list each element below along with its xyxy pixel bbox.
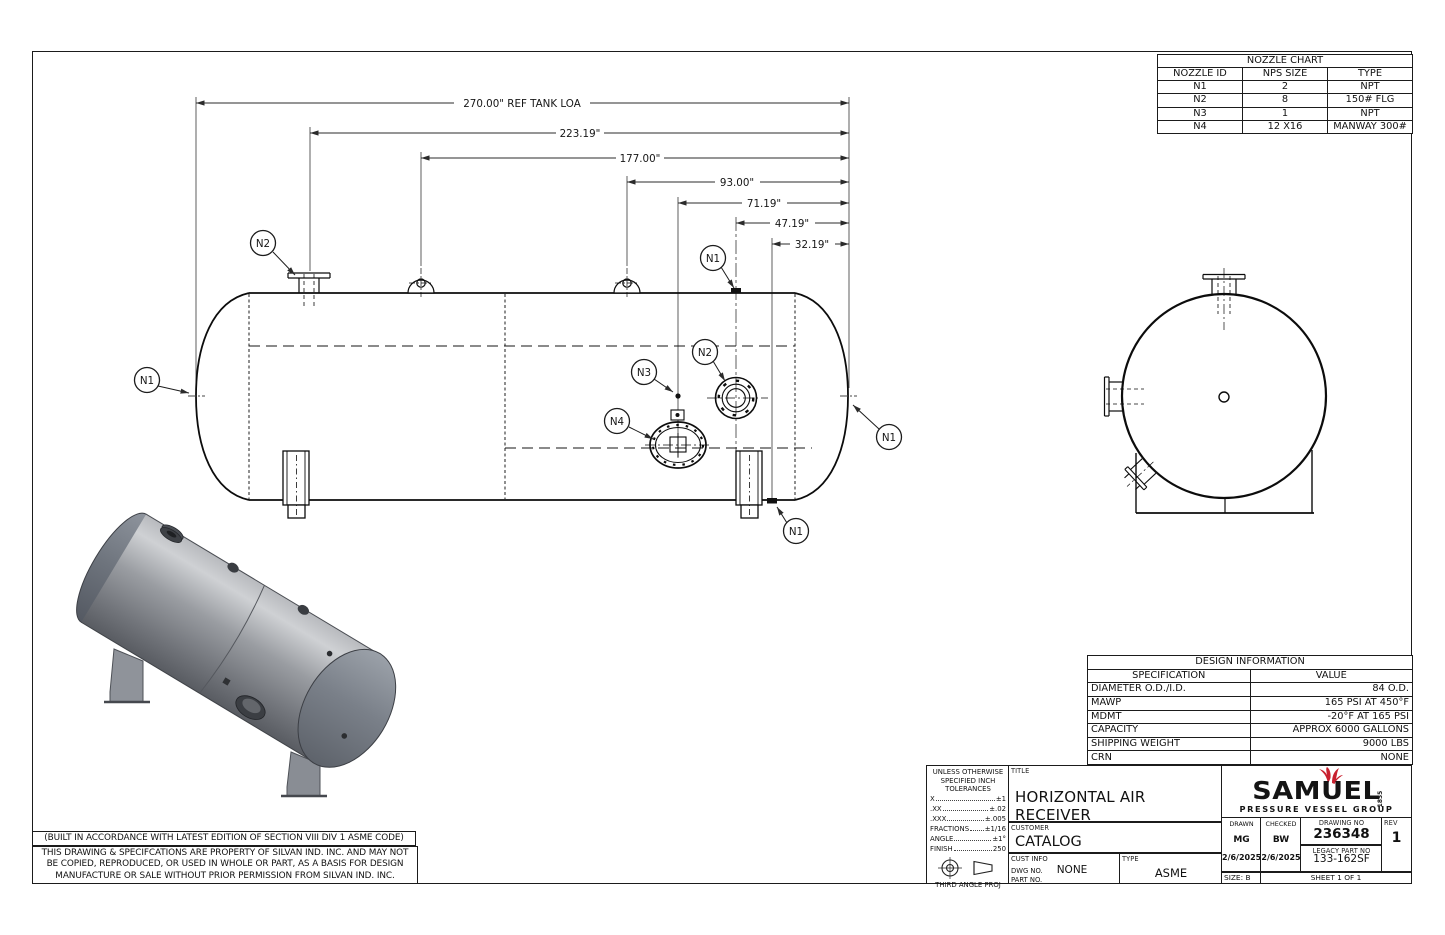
nozzle-size: 8 <box>1243 94 1328 107</box>
tol-name: .XXX <box>930 814 946 824</box>
spec-value: APPROX 6000 GALLONS <box>1250 724 1413 738</box>
spec-name: MAWP <box>1088 696 1251 710</box>
tolerance-heading: TOLERANCES <box>930 785 1006 794</box>
cust-info-label: CUST INFO <box>1011 855 1048 863</box>
drawn-by: MG <box>1222 835 1261 845</box>
nozzle-row: N2 8 150# FLG <box>1158 94 1413 107</box>
tol-value: ±1/16 <box>985 824 1006 834</box>
tol-value: ±1° <box>992 834 1006 844</box>
customer-cell: CUSTOMER CATALOG <box>1008 822 1223 853</box>
tol-value: 250 <box>993 844 1006 854</box>
checked-label: CHECKED <box>1261 820 1301 828</box>
projection-label: THIRD ANGLE PROJ <box>930 881 1006 889</box>
design-info-header: SPECIFICATION <box>1088 669 1251 683</box>
nozzle-id: N1 <box>1158 81 1243 94</box>
legacy-part-cell: LEGACY PART NO 133-162SF <box>1300 845 1383 872</box>
nozzle-chart: NOZZLE CHART NOZZLE ID NPS SIZE TYPE N1 … <box>1157 54 1413 134</box>
spec-name: CAPACITY <box>1088 724 1251 738</box>
property-note-line: BE COPIED, REPRODUCED, OR USED IN WHOLE … <box>33 859 417 870</box>
tol-value: ±1 <box>996 794 1006 804</box>
part-no-label: PART NO. <box>1011 876 1042 884</box>
legacy-part-label: LEGACY PART NO <box>1301 847 1382 855</box>
drawn-date: 2/6/2025 <box>1222 853 1261 862</box>
spec-name: MDMT <box>1088 710 1251 724</box>
design-info-title: DESIGN INFORMATION <box>1088 656 1413 670</box>
tolerance-row: FINISH250 <box>930 844 1006 854</box>
design-info-row: SHIPPING WEIGHT 9000 LBS <box>1088 737 1413 751</box>
spec-name: SHIPPING WEIGHT <box>1088 737 1251 751</box>
checked-date: 2/6/2025 <box>1261 853 1301 862</box>
design-info-row: MDMT -20°F AT 165 PSI <box>1088 710 1413 724</box>
spec-value: 84 O.D. <box>1250 683 1413 697</box>
checked-cell: CHECKED BW 2/6/2025 <box>1260 817 1302 872</box>
cust-info-cell: CUST INFO DWG NO.NONE PART NO. <box>1008 853 1121 884</box>
nozzle-chart-header: NOZZLE ID <box>1158 68 1243 81</box>
tolerance-row: ANGLE±1° <box>930 834 1006 844</box>
rev-label: REV <box>1384 819 1398 827</box>
drawing-no: 236348 <box>1301 826 1382 842</box>
nozzle-chart-header: NPS SIZE <box>1243 68 1328 81</box>
tol-name: X <box>930 794 935 804</box>
sheet-cell: SHEET 1 OF 1 <box>1260 872 1412 884</box>
design-info-row: DIAMETER O.D./I.D. 84 O.D. <box>1088 683 1413 697</box>
dwg-no-value: NONE <box>1057 864 1088 876</box>
tol-value: ±.02 <box>989 804 1006 814</box>
logo-year: 1855 <box>1378 791 1384 808</box>
nozzle-size: 2 <box>1243 81 1328 94</box>
asme-code-note: (BUILT IN ACCORDANCE WITH LATEST EDITION… <box>32 831 416 846</box>
property-note-line: THIS DRAWING & SPECIFCATIONS ARE PROPERT… <box>33 848 417 859</box>
drawing-sheet: { "nozzle_chart": { "title": "NOZZLE CHA… <box>0 0 1445 935</box>
property-note-line: MANUFACTURE OR SALE WITHOUT PRIOR PERMIS… <box>33 871 417 882</box>
type-value: ASME <box>1120 866 1222 880</box>
spec-value: 165 PSI AT 450°F <box>1250 696 1413 710</box>
tolerance-row: X±1 <box>930 794 1006 804</box>
logo-tagline: PRESSURE VESSEL GROUP <box>1240 804 1394 814</box>
tolerance-row: .XXX±.005 <box>930 814 1006 824</box>
nozzle-row: N4 12 X16 MANWAY 300# <box>1158 120 1413 133</box>
third-angle-projection-icon <box>930 856 1006 880</box>
drawn-label: DRAWN <box>1222 820 1261 828</box>
customer-name: CATALOG <box>1015 834 1082 850</box>
rev-cell: REV 1 <box>1381 817 1412 872</box>
nozzle-chart-title: NOZZLE CHART <box>1158 55 1413 68</box>
asme-note-text: (BUILT IN ACCORDANCE WITH LATEST EDITION… <box>33 833 415 844</box>
nozzle-row: N3 1 NPT <box>1158 107 1413 120</box>
logo-brand-text: SAMUEL <box>1252 776 1380 805</box>
nozzle-type: NPT <box>1328 107 1413 120</box>
type-label: TYPE <box>1122 855 1139 863</box>
design-info-row: CRN NONE <box>1088 751 1413 765</box>
design-info-row: CAPACITY APPROX 6000 GALLONS <box>1088 724 1413 738</box>
checked-by: BW <box>1261 835 1301 845</box>
tolerance-row: FRACTIONS±1/16 <box>930 824 1006 834</box>
tol-value: ±.005 <box>985 814 1006 824</box>
tolerance-heading: UNLESS OTHERWISE <box>930 768 1006 777</box>
tolerance-row: .XX±.02 <box>930 804 1006 814</box>
nozzle-id: N4 <box>1158 120 1243 133</box>
drawing-no-cell: DRAWING NO 236348 <box>1300 817 1383 845</box>
property-note: THIS DRAWING & SPECIFCATIONS ARE PROPERT… <box>32 846 418 884</box>
tolerance-heading: SPECIFIED INCH <box>930 777 1006 786</box>
tol-name: FINISH <box>930 844 953 854</box>
tol-name: FRACTIONS <box>930 824 969 834</box>
nozzle-type: 150# FLG <box>1328 94 1413 107</box>
nozzle-id: N3 <box>1158 107 1243 120</box>
nozzle-size: 12 X16 <box>1243 120 1328 133</box>
rev-value: 1 <box>1382 830 1411 846</box>
nozzle-row: N1 2 NPT <box>1158 81 1413 94</box>
drawn-cell: DRAWN MG 2/6/2025 <box>1221 817 1262 872</box>
dwg-no-label: DWG NO. <box>1011 867 1043 875</box>
nozzle-type: NPT <box>1328 81 1413 94</box>
nozzle-id: N2 <box>1158 94 1243 107</box>
design-info-row: MAWP 165 PSI AT 450°F <box>1088 696 1413 710</box>
design-information-table: DESIGN INFORMATION SPECIFICATION VALUE D… <box>1087 655 1413 765</box>
nozzle-chart-header: TYPE <box>1328 68 1413 81</box>
spec-name: CRN <box>1088 751 1251 765</box>
samuel-logo: SAMUEL1855 <box>1252 778 1380 803</box>
type-cell: TYPE ASME <box>1119 853 1223 884</box>
drawing-no-label: DRAWING NO <box>1301 819 1382 827</box>
tol-name: ANGLE <box>930 834 953 844</box>
nozzle-type: MANWAY 300# <box>1328 120 1413 133</box>
title-label: TITLE <box>1011 767 1029 775</box>
spec-value: 9000 LBS <box>1250 737 1413 751</box>
tolerance-block: UNLESS OTHERWISE SPECIFIED INCH TOLERANC… <box>926 765 1010 884</box>
customer-label: CUSTOMER <box>1011 824 1049 832</box>
spec-value: -20°F AT 165 PSI <box>1250 710 1413 724</box>
drawing-title: HORIZONTAL AIR RECEIVER <box>1015 788 1222 824</box>
size-cell: SIZE: B <box>1221 872 1262 884</box>
design-info-header: VALUE <box>1250 669 1413 683</box>
logo-cell: SAMUEL1855 PRESSURE VESSEL GROUP <box>1221 765 1412 818</box>
title-cell: TITLE HORIZONTAL AIR RECEIVER <box>1008 765 1223 822</box>
spec-value: NONE <box>1250 751 1413 765</box>
spec-name: DIAMETER O.D./I.D. <box>1088 683 1251 697</box>
tol-name: .XX <box>930 804 942 814</box>
nozzle-size: 1 <box>1243 107 1328 120</box>
